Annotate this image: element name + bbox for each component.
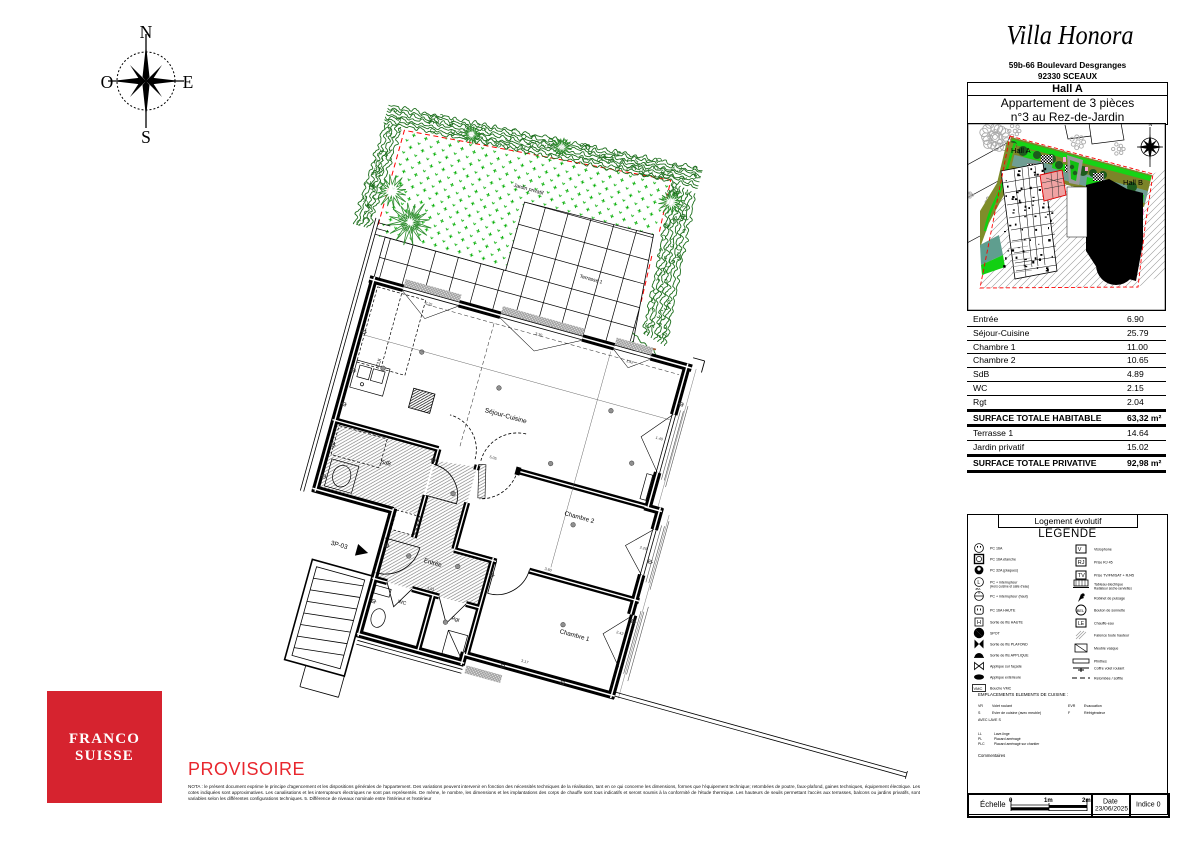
svg-text:3P-03: 3P-03: [330, 540, 349, 551]
